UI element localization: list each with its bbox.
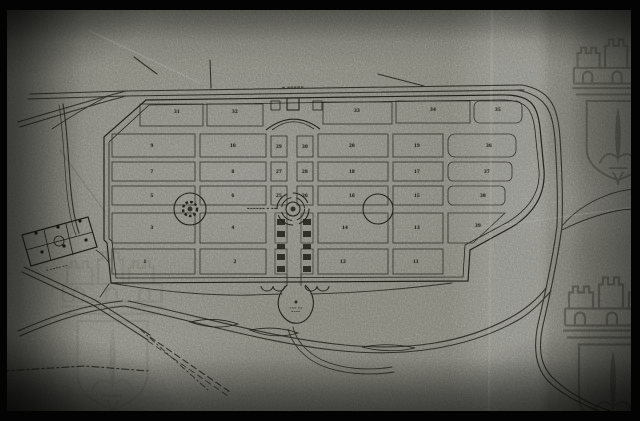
photo-border-left: [0, 0, 7, 421]
photo-border-top: [0, 0, 640, 10]
film-grain: [0, 0, 640, 421]
photo-border-bottom: [0, 411, 640, 421]
photo-border-right: [631, 0, 640, 421]
photo-frame: 3132333435910293020193678272818173756252…: [0, 0, 640, 421]
